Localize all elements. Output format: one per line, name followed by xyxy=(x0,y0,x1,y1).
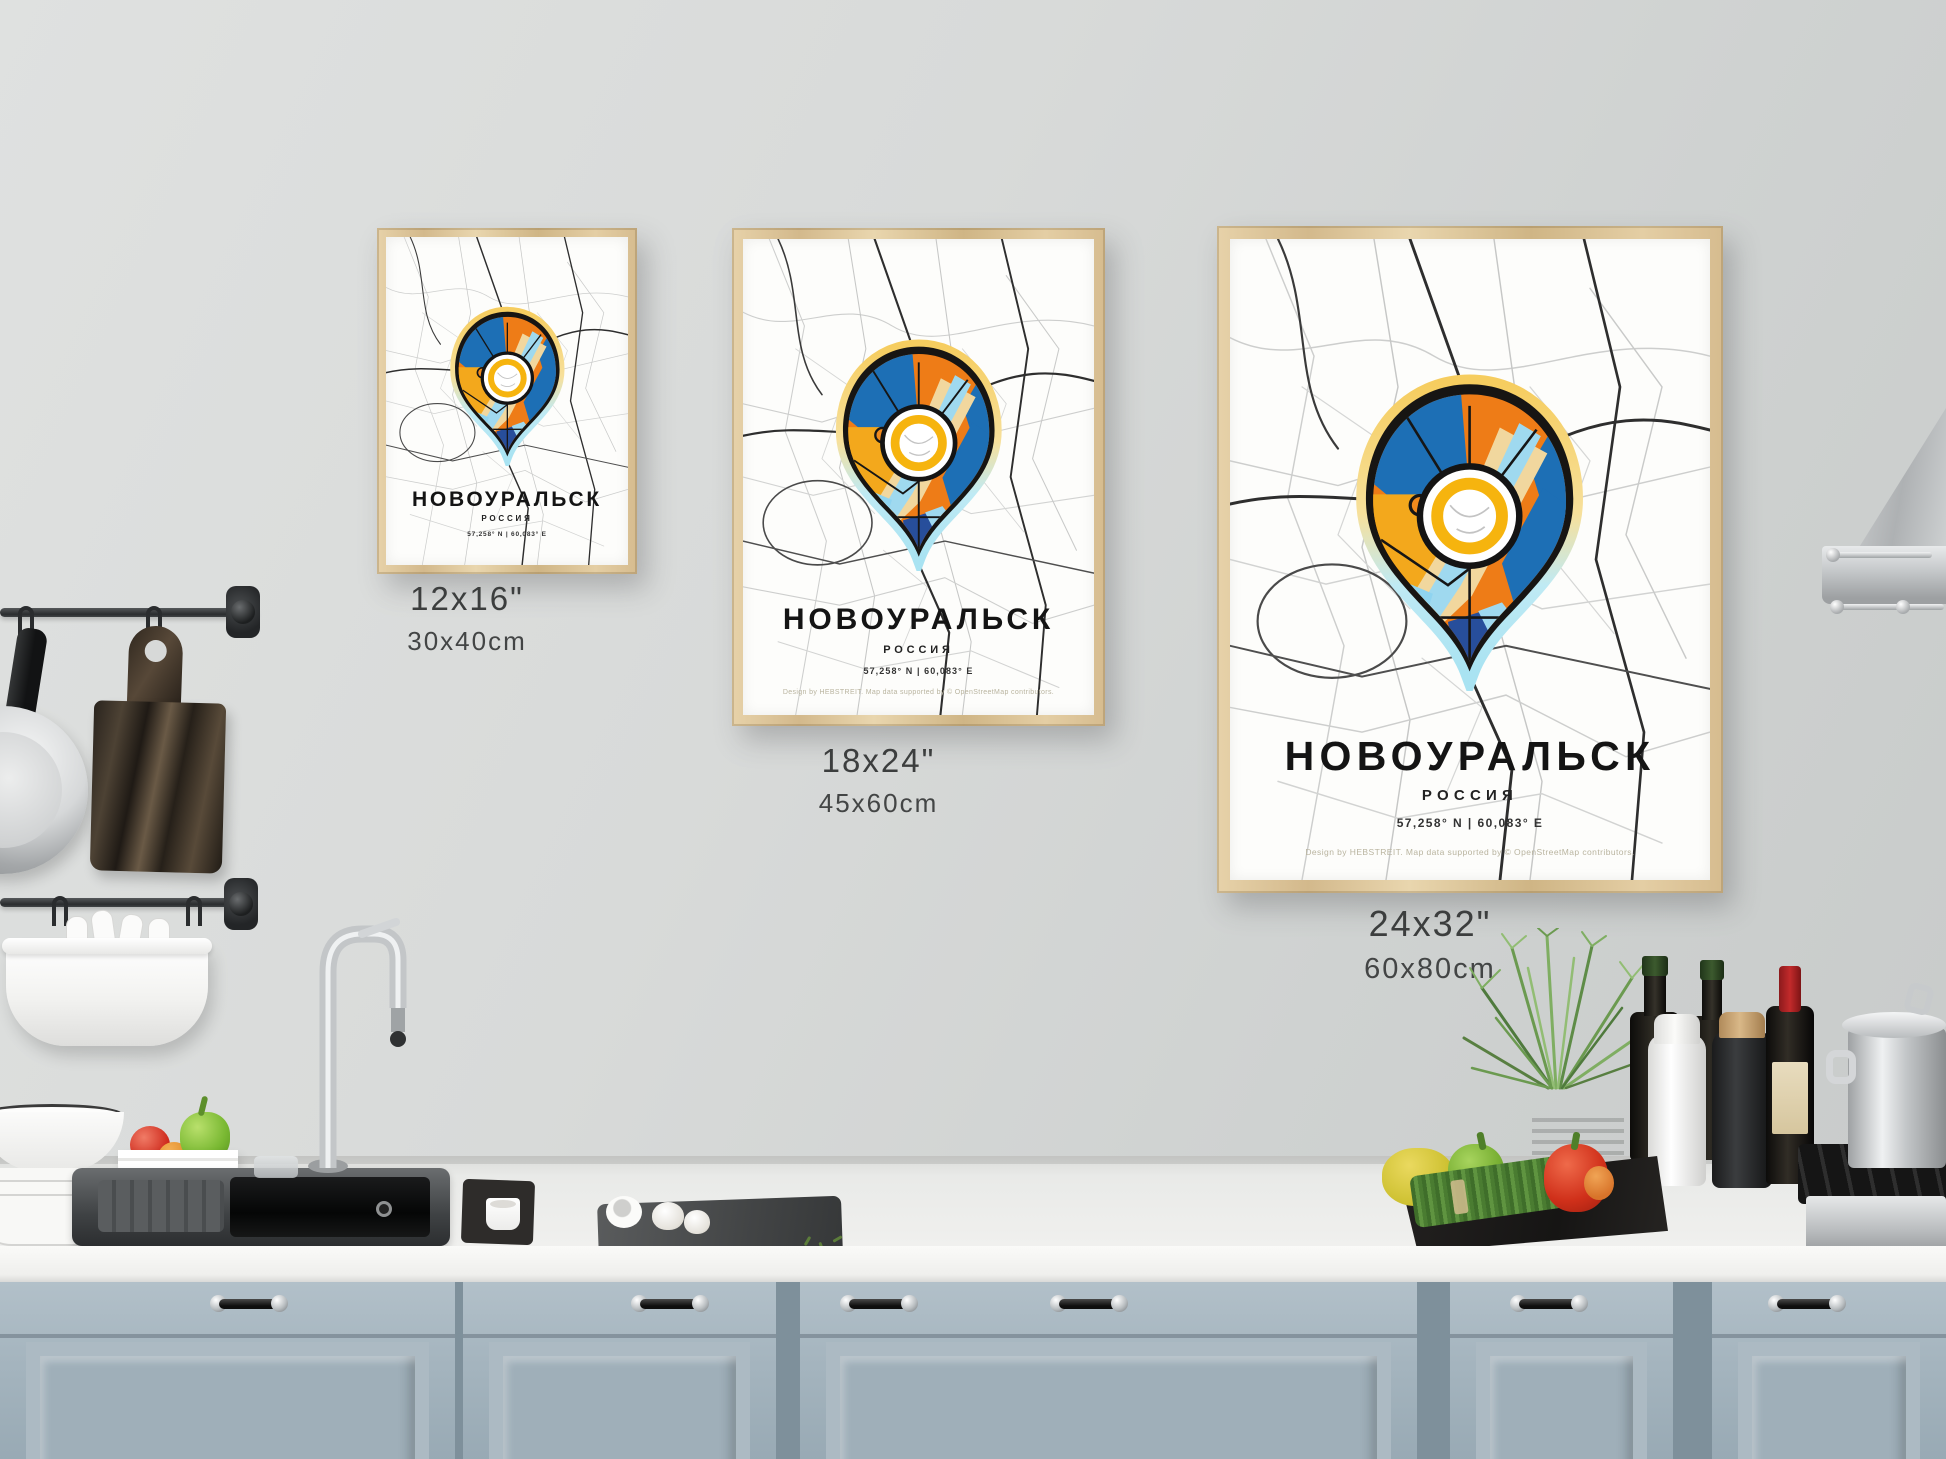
poster-subtitle: РОССИЯ xyxy=(386,514,628,523)
kitchen-sink xyxy=(72,1168,450,1246)
oil-bottle-cap xyxy=(1642,956,1668,976)
range-hood-rail-knob xyxy=(1896,600,1910,614)
rail-finial-lower xyxy=(224,878,258,930)
cabinet-door-panel xyxy=(26,1342,429,1459)
poster-large-print: НОВОУРАЛЬСК РОССИЯ 57,258° N | 60,083° E… xyxy=(1230,239,1710,880)
poster-title: НОВОУРАЛЬСК xyxy=(386,488,628,512)
size-centimeters: 30x40cm xyxy=(337,626,597,657)
size-label-medium: 18x24" 45x60cm xyxy=(692,742,1065,819)
range-hood-rail xyxy=(1836,604,1944,610)
drawer-seam xyxy=(1450,1334,1673,1338)
frying-pan xyxy=(0,706,88,874)
pot-side-handle xyxy=(1826,1050,1856,1084)
map-pin-icon xyxy=(442,303,573,466)
sink-drainboard xyxy=(98,1180,224,1232)
poster-subtitle: РОССИЯ xyxy=(743,644,1094,656)
countertop-front-edge xyxy=(0,1246,1946,1282)
cabinet-unit xyxy=(463,1282,776,1459)
pinch-bowl xyxy=(606,1196,642,1228)
wine-bottle-label xyxy=(1772,1062,1808,1134)
poster-medium: НОВОУРАЛЬСК РОССИЯ 57,258° N | 60,083° E… xyxy=(732,228,1105,726)
poster-small-print: НОВОУРАЛЬСК РОССИЯ 57,258° N | 60,083° E xyxy=(386,237,628,565)
poster-credit: Design by HEBSTREIT. Map data supported … xyxy=(1230,847,1710,857)
cabinet-unit xyxy=(800,1282,1417,1459)
hanging-rail-lower xyxy=(0,898,250,907)
size-centimeters: 45x60cm xyxy=(692,788,1065,819)
map-pin-icon xyxy=(1340,367,1599,691)
poster-coordinates: 57,258° N | 60,083° E xyxy=(743,666,1094,676)
poster-title: НОВОУРАЛЬСК xyxy=(1230,733,1710,780)
poster-coordinates: 57,258° N | 60,083° E xyxy=(386,531,628,538)
cabinet-door-panel xyxy=(489,1342,750,1459)
cabinet-handle xyxy=(631,1294,709,1312)
hanging-rail-upper xyxy=(0,608,258,617)
range-hood-rail-knob xyxy=(1830,600,1844,614)
faucet xyxy=(298,912,428,1174)
cabinet-handle xyxy=(840,1294,918,1312)
drawer-seam xyxy=(1712,1334,1946,1338)
range-hood-rail xyxy=(1832,552,1932,558)
wine-bottle-cap xyxy=(1779,966,1801,1012)
white-cup xyxy=(486,1198,520,1230)
garlic-bulb xyxy=(684,1210,710,1234)
cabinet-door-panel xyxy=(1738,1342,1920,1459)
oil-bottle-neck xyxy=(1702,976,1722,1020)
pepper-grinder xyxy=(1712,1030,1772,1188)
sink-drain xyxy=(376,1201,392,1217)
poster-coordinates: 57,258° N | 60,083° E xyxy=(1230,816,1710,830)
oil-bottle-neck xyxy=(1644,972,1666,1016)
size-inches: 12x16" xyxy=(337,580,597,618)
cabinet-door-panel xyxy=(826,1342,1391,1459)
rail-finial-upper xyxy=(226,586,260,638)
red-bell-pepper xyxy=(1544,1144,1608,1212)
drawer-seam xyxy=(0,1334,455,1338)
cabinet-unit xyxy=(0,1282,455,1459)
range-hood-rail-knob xyxy=(1826,548,1840,562)
poster-medium-print: НОВОУРАЛЬСК РОССИЯ 57,258° N | 60,083° E… xyxy=(743,239,1094,715)
cooking-pot xyxy=(1848,1028,1946,1168)
cabinet-handle xyxy=(1050,1294,1128,1312)
drawer-seam xyxy=(463,1334,776,1338)
garlic-bulb xyxy=(652,1202,684,1230)
cabinet-unit xyxy=(1712,1282,1946,1459)
base-cabinets xyxy=(0,1282,1946,1459)
range-hood-chimney xyxy=(1834,408,1946,548)
cabinet-door-panel xyxy=(1476,1342,1647,1459)
poster-credit: Design by HEBSTREIT. Map data supported … xyxy=(743,689,1094,696)
s-hook xyxy=(52,896,68,926)
poster-large: НОВОУРАЛЬСК РОССИЯ 57,258° N | 60,083° E… xyxy=(1217,226,1723,893)
cabinet-handle xyxy=(1768,1294,1846,1312)
soap-dish xyxy=(254,1156,298,1178)
s-hook xyxy=(186,896,202,926)
poster-subtitle: РОССИЯ xyxy=(1230,787,1710,804)
utensil-bucket xyxy=(6,942,208,1046)
pot-lid xyxy=(1842,1012,1946,1038)
size-inches: 18x24" xyxy=(692,742,1065,780)
poster-small: НОВОУРАЛЬСК РОССИЯ 57,258° N | 60,083° E xyxy=(377,228,637,574)
oil-bottle-cap xyxy=(1700,960,1724,980)
pot-lid-handle xyxy=(1903,981,1935,1016)
drawer-seam xyxy=(800,1334,1417,1338)
hanging-cutting-board xyxy=(90,700,226,873)
kitchen-scene: НОВОУРАЛЬСК РОССИЯ 57,258° N | 60,083° E… xyxy=(0,0,1946,1459)
size-label-small: 12x16" 30x40cm xyxy=(337,580,597,657)
sink-basin xyxy=(230,1177,430,1237)
cabinet-unit xyxy=(1450,1282,1673,1459)
cabinet-handle xyxy=(210,1294,288,1312)
map-pin-icon xyxy=(824,334,1014,571)
cabinet-handle xyxy=(1510,1294,1588,1312)
poster-title: НОВОУРАЛЬСК xyxy=(743,603,1094,637)
